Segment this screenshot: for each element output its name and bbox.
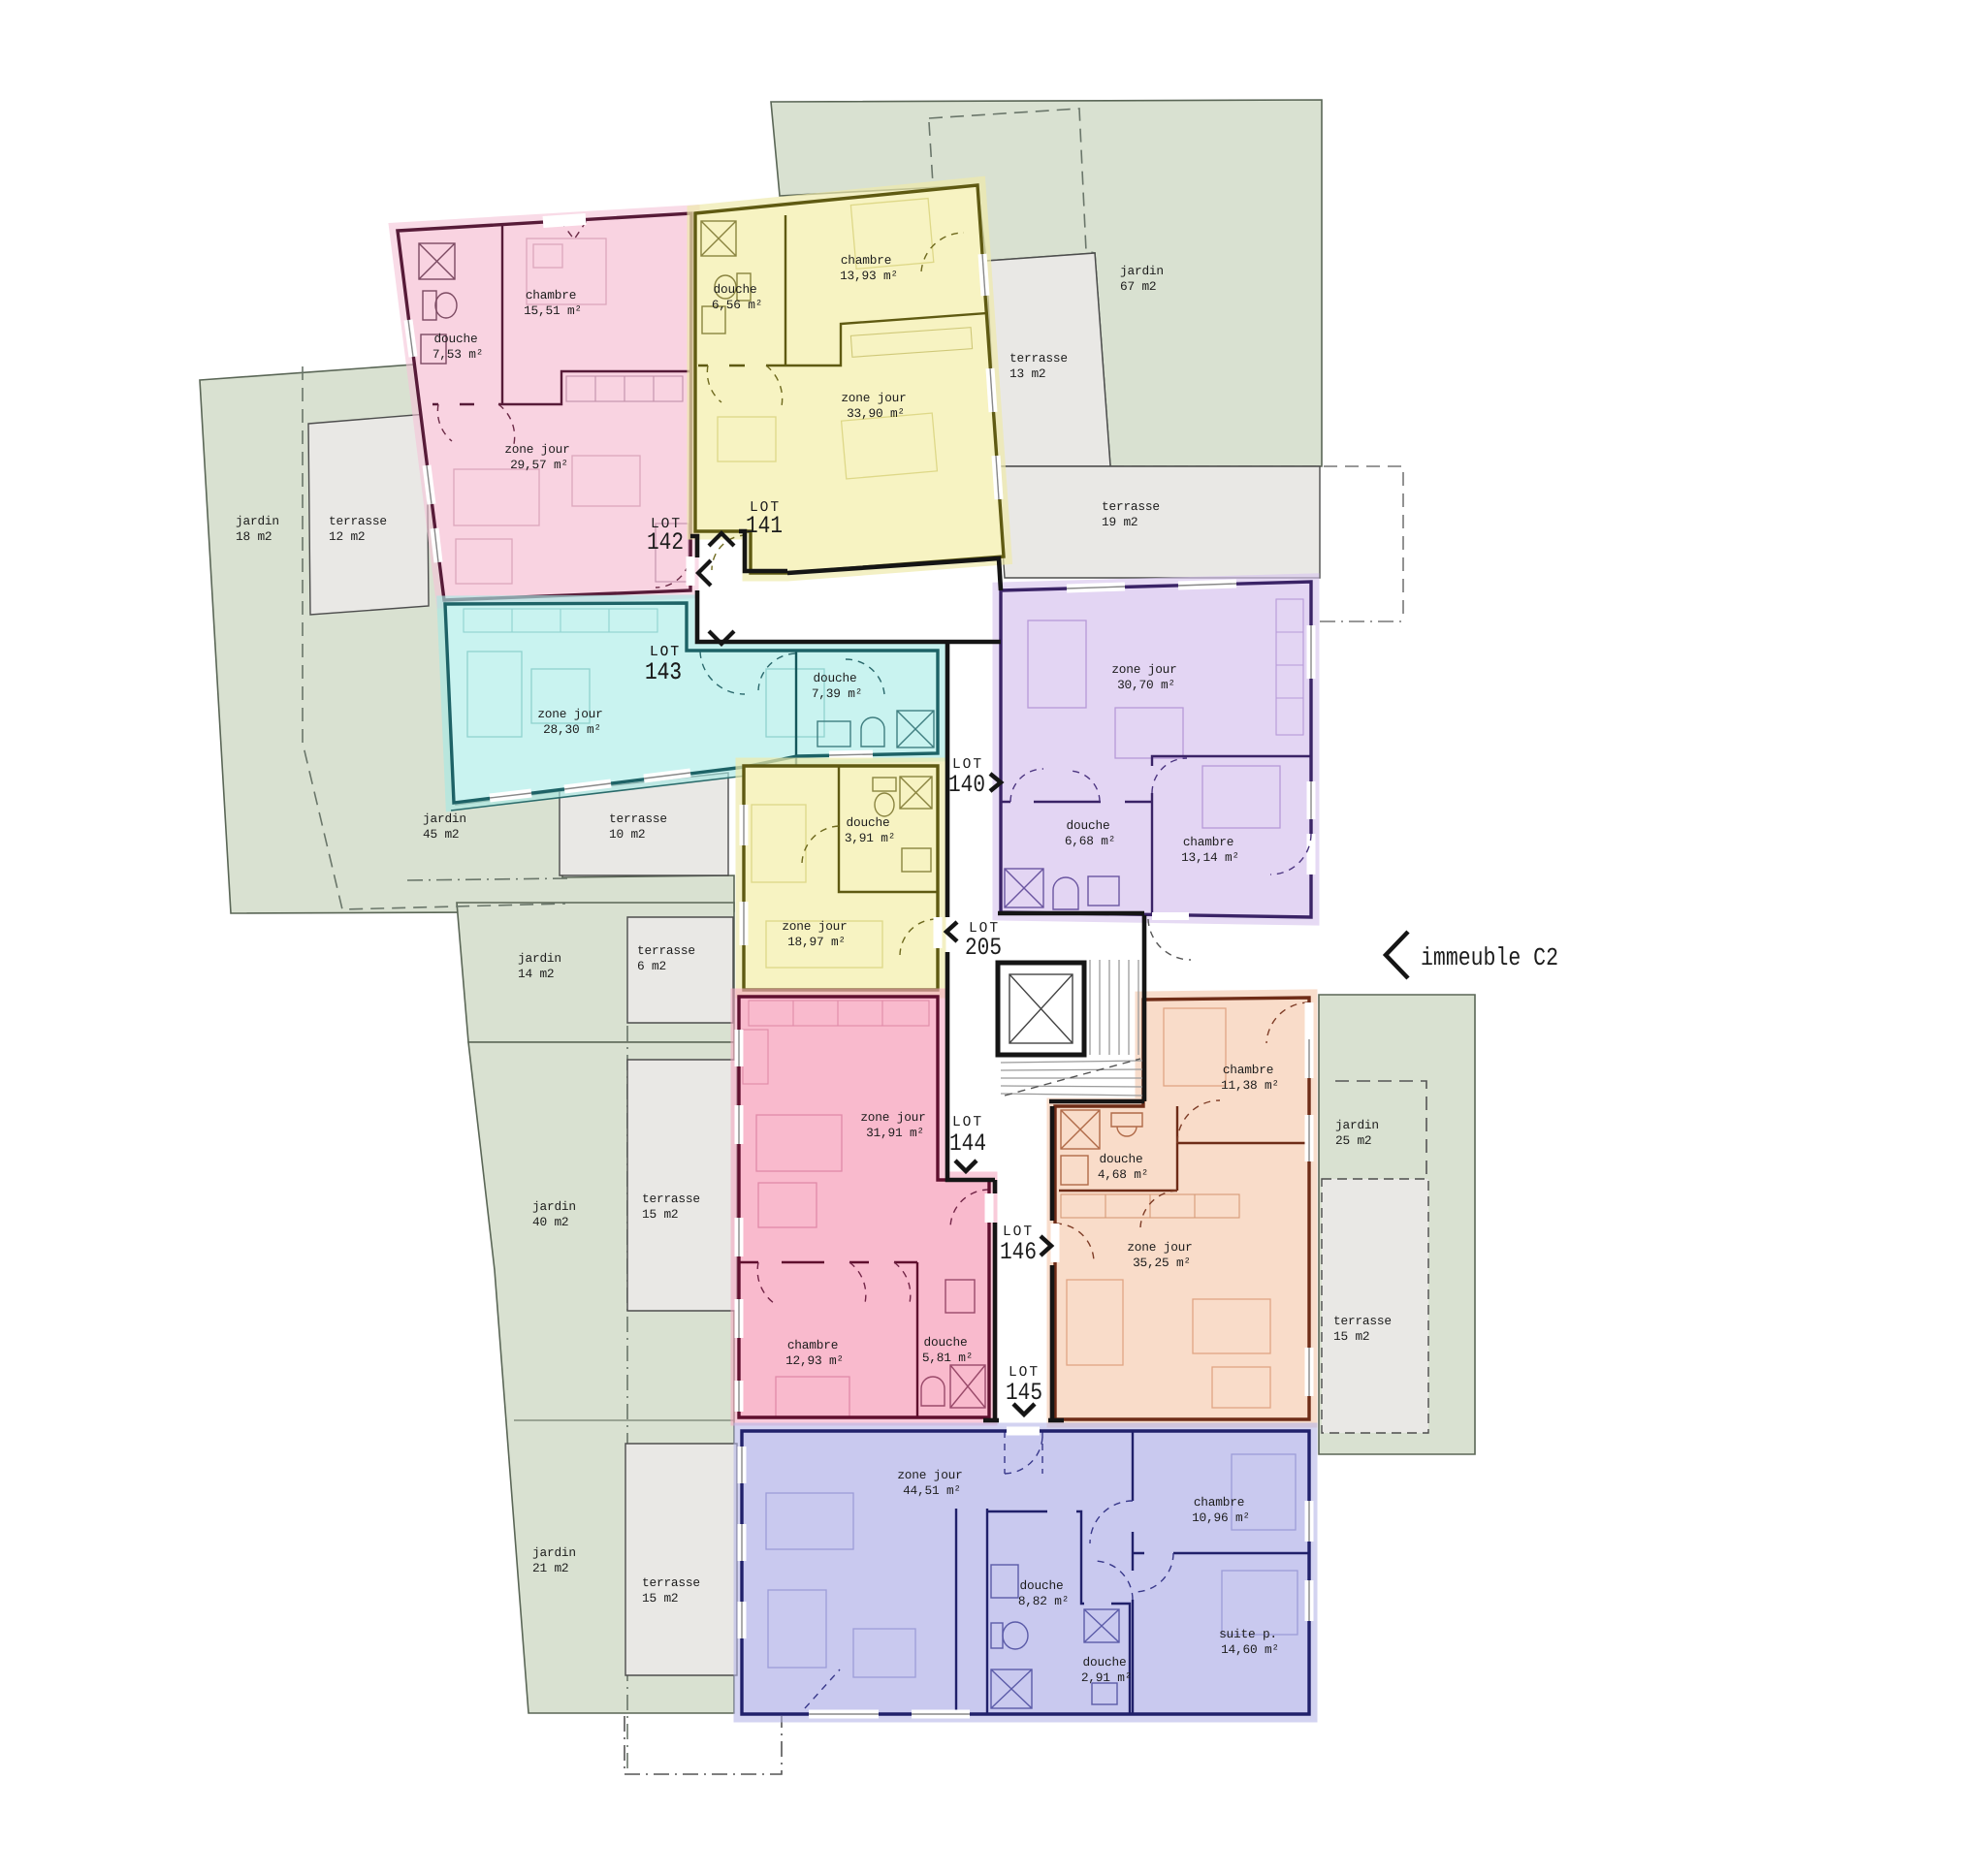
svg-text:67 m2: 67 m2 [1120, 279, 1156, 294]
svg-text:zone jour: zone jour [860, 1110, 925, 1125]
svg-text:21 m2: 21 m2 [532, 1561, 568, 1575]
svg-text:33,90 m²: 33,90 m² [847, 406, 905, 421]
svg-text:143: 143 [645, 658, 682, 686]
svg-text:6,68 m²: 6,68 m² [1065, 834, 1115, 848]
svg-text:15 m2: 15 m2 [642, 1207, 678, 1222]
svg-text:zone jour: zone jour [897, 1468, 962, 1482]
svg-text:12 m2: 12 m2 [329, 529, 365, 544]
svg-text:30,70 m²: 30,70 m² [1117, 678, 1175, 692]
svg-text:13,14 m²: 13,14 m² [1181, 850, 1239, 865]
svg-text:13 m2: 13 m2 [1009, 366, 1045, 381]
svg-text:douche: douche [814, 671, 857, 685]
svg-text:chambre: chambre [787, 1338, 838, 1352]
svg-text:suite p.: suite p. [1219, 1627, 1277, 1641]
svg-text:6,56 m²: 6,56 m² [712, 298, 762, 312]
svg-text:6 m2: 6 m2 [637, 959, 666, 973]
svg-text:140: 140 [948, 771, 985, 799]
svg-text:jardin: jardin [423, 811, 466, 826]
svg-text:15,51 m²: 15,51 m² [524, 303, 582, 318]
svg-text:zone jour: zone jour [782, 919, 847, 934]
svg-text:145: 145 [1006, 1379, 1042, 1407]
svg-text:8,82 m²: 8,82 m² [1018, 1594, 1069, 1608]
svg-text:chambre: chambre [1183, 835, 1233, 849]
svg-text:18,97 m²: 18,97 m² [787, 935, 846, 949]
svg-text:40 m2: 40 m2 [532, 1215, 568, 1229]
svg-text:terrasse: terrasse [1102, 499, 1160, 514]
svg-text:44,51 m²: 44,51 m² [903, 1483, 961, 1498]
svg-text:douche: douche [1067, 818, 1110, 833]
svg-text:19 m2: 19 m2 [1102, 515, 1137, 529]
svg-text:45 m2: 45 m2 [423, 827, 459, 842]
svg-text:144: 144 [949, 1129, 986, 1158]
svg-text:142: 142 [647, 528, 684, 556]
svg-text:zone jour: zone jour [1111, 662, 1176, 677]
svg-text:35,25 m²: 35,25 m² [1133, 1256, 1191, 1270]
svg-text:chambre: chambre [1223, 1063, 1273, 1077]
svg-text:14 m2: 14 m2 [518, 967, 554, 981]
svg-text:5,81 m²: 5,81 m² [922, 1351, 973, 1365]
svg-text:immeuble C2: immeuble C2 [1421, 943, 1558, 972]
svg-text:jardin: jardin [1120, 264, 1164, 278]
svg-text:jardin: jardin [236, 514, 279, 528]
svg-text:25 m2: 25 m2 [1335, 1133, 1371, 1148]
svg-text:zone jour: zone jour [1127, 1240, 1192, 1255]
svg-text:146: 146 [1000, 1238, 1037, 1266]
svg-text:10,96 m²: 10,96 m² [1192, 1510, 1250, 1525]
svg-text:11,38 m²: 11,38 m² [1221, 1078, 1279, 1093]
svg-text:12,93 m²: 12,93 m² [785, 1353, 844, 1368]
svg-text:7,39 m²: 7,39 m² [812, 686, 862, 701]
svg-text:terrasse: terrasse [329, 514, 387, 528]
svg-text:douche: douche [1020, 1578, 1064, 1593]
svg-text:terrasse: terrasse [642, 1192, 700, 1206]
svg-text:terrasse: terrasse [637, 943, 695, 958]
svg-text:31,91 m²: 31,91 m² [866, 1126, 924, 1140]
svg-text:douche: douche [1100, 1152, 1143, 1166]
svg-text:terrasse: terrasse [609, 811, 667, 826]
svg-text:28,30 m²: 28,30 m² [543, 722, 601, 737]
svg-text:chambre: chambre [841, 253, 891, 268]
svg-text:4,68 m²: 4,68 m² [1098, 1167, 1148, 1182]
svg-text:15 m2: 15 m2 [642, 1591, 678, 1606]
svg-text:15 m2: 15 m2 [1333, 1329, 1369, 1344]
svg-text:3,91 m²: 3,91 m² [845, 831, 895, 845]
svg-text:terrasse: terrasse [642, 1575, 700, 1590]
svg-text:douche: douche [434, 332, 478, 346]
svg-text:douche: douche [924, 1335, 968, 1350]
svg-text:jardin: jardin [532, 1545, 576, 1560]
svg-text:14,60 m²: 14,60 m² [1221, 1642, 1279, 1657]
svg-text:7,53 m²: 7,53 m² [432, 347, 483, 362]
svg-text:jardin: jardin [532, 1199, 576, 1214]
svg-text:2,91 m²: 2,91 m² [1081, 1670, 1132, 1685]
svg-text:chambre: chambre [1194, 1495, 1244, 1510]
svg-text:douche: douche [847, 815, 890, 830]
svg-text:douche: douche [1083, 1655, 1127, 1669]
svg-text:douche: douche [714, 282, 757, 297]
svg-text:chambre: chambre [526, 288, 576, 302]
svg-text:13,93 m²: 13,93 m² [840, 269, 898, 283]
svg-text:terrasse: terrasse [1009, 351, 1068, 366]
svg-text:zone jour: zone jour [537, 707, 602, 721]
svg-text:10 m2: 10 m2 [609, 827, 645, 842]
svg-text:LOT: LOT [952, 1114, 983, 1130]
svg-text:205: 205 [965, 934, 1002, 962]
svg-text:terrasse: terrasse [1333, 1314, 1392, 1328]
svg-text:zone jour: zone jour [504, 442, 569, 457]
svg-text:jardin: jardin [1335, 1118, 1379, 1132]
svg-text:29,57 m²: 29,57 m² [510, 458, 568, 472]
svg-text:zone jour: zone jour [841, 391, 906, 405]
svg-text:jardin: jardin [518, 951, 561, 966]
svg-text:141: 141 [746, 512, 783, 540]
svg-text:18 m2: 18 m2 [236, 529, 272, 544]
